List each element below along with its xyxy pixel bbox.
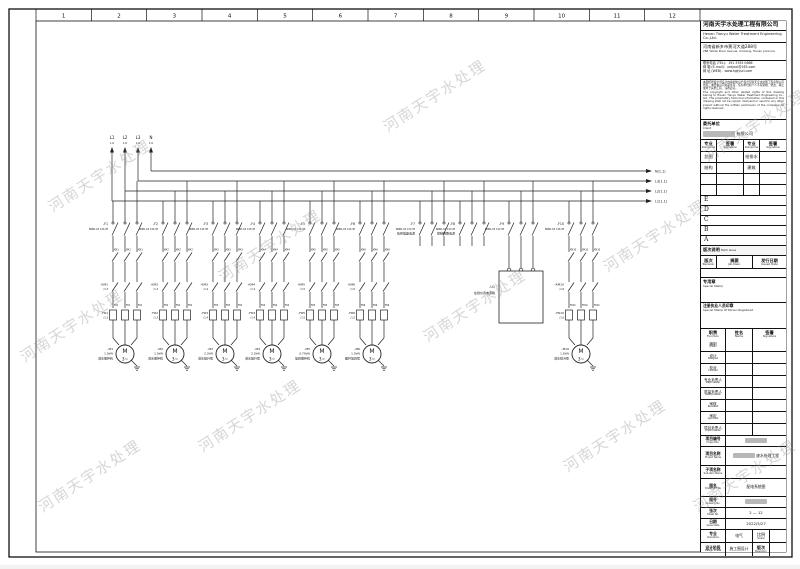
cell: 结构 xyxy=(701,163,717,173)
wire xyxy=(360,338,366,345)
contact-label: KM10 xyxy=(570,249,577,252)
arrow-right-icon xyxy=(646,169,652,173)
breaker-tag: -F1 xyxy=(103,222,108,226)
name-cell xyxy=(726,364,753,375)
contactor-tag: -KM10 xyxy=(555,283,565,287)
contactor-ref: /1.5 xyxy=(300,288,305,291)
contactor-pole-icon xyxy=(212,283,218,292)
breaker-tag: -F7 xyxy=(410,222,415,226)
relay-label: FR10 xyxy=(594,304,600,307)
thermal-relay-symbol xyxy=(184,310,191,320)
row-label: 专业Discipline xyxy=(701,530,726,542)
breaker-contact-icon xyxy=(443,222,445,224)
contactor-tag: -KM5 xyxy=(297,283,305,287)
pe-wire xyxy=(328,360,334,366)
name-cell xyxy=(726,340,753,351)
drawing-sheet: 123456789101112 L1 L2 L3 N 1.0 1.0 1.0 1… xyxy=(0,0,800,565)
thermal-relay-ref: /1.3 xyxy=(153,316,158,319)
client-value: 有限公司 xyxy=(703,131,784,137)
breaker-contact-icon xyxy=(431,222,433,224)
function-table-row: 项目负责人Project Leader xyxy=(701,423,786,435)
wire xyxy=(278,338,284,345)
breaker-tag: -F2 xyxy=(153,222,158,226)
contactor-ref: /1.4 xyxy=(250,288,255,291)
motor-power: 2.2kW xyxy=(204,352,213,356)
motor-name: 潜水搅拌机 xyxy=(98,356,113,361)
sheet-ref: 1.0 xyxy=(136,141,140,145)
contact-label: KM6 xyxy=(385,249,390,252)
relay-label: FR2 xyxy=(176,304,181,307)
contactor-pole-icon xyxy=(333,283,339,292)
cell xyxy=(744,174,760,184)
function-cell: 审定Approved xyxy=(701,412,726,423)
motor-power: 1.5kW xyxy=(560,352,569,356)
thermal-relay-symbol xyxy=(590,310,597,320)
motor-tag: -M6 xyxy=(354,347,360,351)
contactor-pole-icon xyxy=(283,253,289,262)
contact-label: KM4 xyxy=(261,249,266,252)
function-table-row: 校对Checked xyxy=(701,363,786,375)
thermal-relay-tag: -FR4 xyxy=(248,311,255,315)
signature-cell xyxy=(753,400,786,411)
row-label: 图名Drawing Title xyxy=(701,479,726,496)
thermal-relay-ref: /1.5 xyxy=(300,316,305,319)
cell xyxy=(744,185,760,195)
breaker-pole-icon xyxy=(532,223,538,236)
row-value: 电气 xyxy=(726,530,752,542)
arrow-up-icon xyxy=(149,147,153,153)
row-value: 2022/5/27 xyxy=(726,519,786,529)
row-value: 废水处理工程 xyxy=(726,447,786,465)
web-value: www.hgtyscl.com xyxy=(724,69,752,73)
contact-label: KM3 xyxy=(226,249,231,252)
company-name: 河南天宇水处理工程有限公司 xyxy=(701,21,786,31)
breaker-contact-icon xyxy=(212,222,214,224)
feeder-branch: -F1NDB1-63 C16 3PKM1FR1KM1FR1KM1FR1-KM1/… xyxy=(89,181,143,371)
sign-grid-row xyxy=(701,184,786,195)
function-table: 职责Function 姓名Name 签署Signature 编制Drawn设计D… xyxy=(701,329,786,436)
contactor-ref: /1.3 xyxy=(153,288,158,291)
row-label: 图号Drawing No. xyxy=(701,497,726,507)
contact-label: KM3 xyxy=(238,249,243,252)
bus-out-label: L3(1.1) xyxy=(655,180,668,184)
row-label: 子项名称Sub-item Name xyxy=(701,466,726,478)
info-row-date: 日期Issue Date 2022/5/27 xyxy=(701,519,786,530)
breaker-pole-icon xyxy=(321,223,327,236)
bus-lines: N(1.1) L3(1.1) L2(1.1) L1(1.1) xyxy=(112,169,668,204)
motor-tag: -M2 xyxy=(157,347,163,351)
breaker-tag: -F4 xyxy=(250,222,255,226)
relay-label: FR3 xyxy=(238,304,243,307)
phase-label: L2 xyxy=(123,135,128,140)
breaker-pole-icon xyxy=(359,223,365,236)
breaker-contact-icon xyxy=(136,222,138,224)
row-value: 2 — 12 xyxy=(726,508,786,518)
cell: 给排水 xyxy=(744,152,760,162)
breaker-contact-icon xyxy=(580,222,582,224)
relay-label: FR4 xyxy=(273,304,278,307)
info-row-subitem: 子项名称Sub-item Name xyxy=(701,466,786,479)
contactor-pole-icon xyxy=(259,283,265,292)
contactor-pole-icon xyxy=(283,283,289,292)
relay-label: FR2 xyxy=(188,304,193,307)
pe-wire xyxy=(278,360,284,366)
contactor-tag: -KM4 xyxy=(247,283,255,287)
feeder-branch: -F6NDB1-63 C16 3PKM6FR6KM6FR6KM6FR6-KM6/… xyxy=(336,181,390,371)
column-number: 9 xyxy=(505,14,509,20)
arrow-right-icon xyxy=(646,199,652,203)
breaker-contact-icon xyxy=(224,222,226,224)
breaker-contact-icon xyxy=(532,222,534,224)
breaker-contact-icon xyxy=(321,222,323,224)
breaker-contact-icon xyxy=(419,222,421,224)
motor-tag: -M3 xyxy=(207,347,213,351)
column-number: 12 xyxy=(669,14,676,20)
function-table-row: 审核Reviewed xyxy=(701,399,786,411)
breaker-contact-icon xyxy=(471,222,473,224)
motor-name: 潜水排污泵 xyxy=(554,356,569,361)
wire xyxy=(328,338,334,345)
thermal-relay-symbol xyxy=(122,310,129,320)
breaker-contact-icon xyxy=(459,222,461,224)
feeder-branch: -F10NDB1-63 C16 3PKM10FR10KM10FR10KM10FR… xyxy=(545,181,601,371)
motor-letter: M xyxy=(222,348,227,355)
breaker-contact-icon xyxy=(186,222,188,224)
revision-letter-row: C xyxy=(701,215,786,225)
column-number: 11 xyxy=(614,14,621,20)
function-table-row: 质量负责人Quality Leader xyxy=(701,387,786,399)
motor-power: 1.5kW xyxy=(104,352,113,356)
thermal-relay-symbol xyxy=(319,310,326,320)
revision-letter-row: A xyxy=(701,235,786,245)
function-table-rows: 编制Drawn设计Designed校对Checked专业负责人Major Lea… xyxy=(701,340,786,435)
contactor-pole-icon xyxy=(321,283,327,292)
motor-name: 螺杆加药泵 xyxy=(345,356,360,361)
name-cell xyxy=(726,424,753,435)
row-label: 项目名称Project Name xyxy=(701,447,726,465)
motor-phase: 3~ xyxy=(222,357,229,362)
cell: 总图 xyxy=(701,152,717,162)
header-cell: 专业Discipline xyxy=(744,140,760,151)
info-row-phase-revision: 设计阶段Design Phase 施工图设计 版次Revision xyxy=(701,543,786,556)
pe-wire xyxy=(587,360,593,366)
company-contacts: 联系电话 (TEL)：191 3355 0686 邮 箱 (E-mail)：xx… xyxy=(701,61,786,80)
contactor-pole-icon xyxy=(359,253,365,262)
sheet-ref: 1.0 xyxy=(110,141,114,145)
thermal-relay-symbol xyxy=(331,310,338,320)
company-address: 河南省新乡市黄河大道288号 288 Yellow River Avenue, … xyxy=(701,43,786,61)
motor-tag: -M5 xyxy=(304,347,310,351)
contactor-pole-icon xyxy=(271,283,277,292)
sheet-ref: 1.0 xyxy=(123,141,127,145)
thermal-relay-tag: -FR6 xyxy=(348,311,355,315)
thermal-relay-symbol xyxy=(357,310,364,320)
box-name: 在线仪表电源箱 xyxy=(474,290,495,295)
thermal-relay-symbol xyxy=(222,310,229,320)
breaker-contact-icon xyxy=(333,222,335,224)
contactor-pole-icon xyxy=(112,283,118,292)
breaker-spec: NDB1-63 C10 3P xyxy=(436,228,456,231)
function-label-en: Checked xyxy=(701,370,725,373)
wire xyxy=(231,338,237,345)
column-number: 8 xyxy=(449,14,453,20)
function-cell: 设计Designed xyxy=(701,352,726,363)
redacted-value xyxy=(733,453,755,458)
wire xyxy=(587,338,593,345)
breaker-pole-icon xyxy=(371,223,377,236)
bus-out-label: L1(1.1) xyxy=(655,200,668,204)
contactor-pole-icon xyxy=(136,253,142,262)
registered-stamp-label-en: Special Stamp Of Person Registered xyxy=(703,309,784,312)
motor-power: 1.5kW xyxy=(154,352,163,356)
contact-label: KM2 xyxy=(188,249,193,252)
motor-phase: 3~ xyxy=(578,357,585,362)
motor-phase: 3~ xyxy=(122,357,129,362)
motor-name: 潜水搅拌机 xyxy=(148,356,163,361)
thermal-relay-symbol xyxy=(369,310,376,320)
header-cell: 摘要Job Desc. xyxy=(717,256,753,268)
contactor-pole-icon xyxy=(592,253,598,262)
contactor-pole-icon xyxy=(136,283,142,292)
breaker-spec: NDB1-63 C10 3P xyxy=(396,228,416,231)
contact-label: KM3 xyxy=(214,249,219,252)
relay-label: FR4 xyxy=(261,304,266,307)
feeder-name: 检修插座电源 xyxy=(397,230,415,235)
function-table-row: 设计Designed xyxy=(701,351,786,363)
cell xyxy=(717,174,744,184)
relay-label: FR6 xyxy=(385,304,390,307)
row-value: 施工图设计 xyxy=(726,543,752,556)
name-cell xyxy=(726,352,753,363)
copyright-notice: 本图纸所载全部设计内容的知识产权归河南天宇水处理工程有限公司所有。未经本公司书面… xyxy=(701,80,786,120)
wire xyxy=(213,338,219,345)
motor-letter: M xyxy=(269,348,274,355)
row-value xyxy=(770,543,786,556)
pe-wire xyxy=(181,360,187,366)
motor-letter: M xyxy=(122,348,127,355)
function-table-header: 职责Function 姓名Name 签署Signature xyxy=(701,329,786,340)
notice-en: The copyright and other related rights o… xyxy=(703,91,784,110)
header-cell: 签署Signature xyxy=(760,140,786,151)
contactor-pole-icon xyxy=(174,283,180,292)
breaker-pole-icon xyxy=(568,223,574,236)
client-suffix: 有限公司 xyxy=(736,131,753,136)
breaker-contact-icon xyxy=(568,222,570,224)
sign-grid-row: 总图 给排水 xyxy=(701,151,786,162)
function-cell: 质量负责人Quality Leader xyxy=(701,388,726,399)
box-tag: -U1 xyxy=(489,285,495,289)
thermal-relay-symbol xyxy=(578,310,585,320)
sheet-ref: 1.0 xyxy=(149,141,153,145)
row-value xyxy=(726,497,786,507)
pe-wire xyxy=(131,360,137,366)
thermal-relay-symbol xyxy=(110,310,117,320)
relay-label: FR3 xyxy=(226,304,231,307)
breaker-contact-icon xyxy=(162,222,164,224)
thermal-relay-symbol xyxy=(381,310,388,320)
redacted-client-name xyxy=(703,131,735,137)
relay-label: FR1 xyxy=(114,304,119,307)
breaker-contact-icon xyxy=(592,222,594,224)
cell xyxy=(717,163,744,173)
breaker-pole-icon xyxy=(309,223,315,236)
contact-label: KM6 xyxy=(361,249,366,252)
column-number: 10 xyxy=(558,14,565,20)
thermal-relay-symbol xyxy=(234,310,241,320)
relay-label: FR5 xyxy=(335,304,340,307)
wire xyxy=(378,338,384,345)
header-cell: 签署Signature xyxy=(753,329,786,340)
info-row-drawing-title: 图名Drawing Title 配电系统图 xyxy=(701,479,786,497)
breaker-contact-icon xyxy=(359,222,361,224)
contactor-pole-icon xyxy=(383,253,389,262)
motor-tag: -M4 xyxy=(254,347,260,351)
wire xyxy=(181,338,187,345)
contactor-pole-icon xyxy=(162,283,168,292)
outer-border xyxy=(9,9,792,557)
contactor-pole-icon xyxy=(359,283,365,292)
function-cell: 专业负责人Major Leader xyxy=(701,376,726,387)
revision-letter: B xyxy=(701,226,708,235)
breaker-contact-icon xyxy=(271,222,273,224)
contactor-pole-icon xyxy=(592,283,598,292)
name-cell xyxy=(726,376,753,387)
breaker-spec: NDB1-63 C10 3P xyxy=(485,228,505,231)
function-cell: 编制Drawn xyxy=(701,340,726,351)
contactor-pole-icon xyxy=(371,283,377,292)
function-table-row: 专业负责人Major Leader xyxy=(701,375,786,387)
breaker-contact-icon xyxy=(483,222,485,224)
relay-label: FR6 xyxy=(373,304,378,307)
thermal-relay-symbol xyxy=(134,310,141,320)
revision-letter: D xyxy=(701,206,709,215)
info-row-project-name: 项目名称Project Name 废水处理工程 xyxy=(701,447,786,466)
client-section: 委托单位 Client 有限公司 xyxy=(701,120,786,140)
thermal-relay-tag: -FR10 xyxy=(555,311,564,315)
arrow-up-icon xyxy=(136,147,140,153)
motor-name: 潜水提升泵 xyxy=(245,356,260,361)
contactor-pole-icon xyxy=(124,253,130,262)
column-number: 2 xyxy=(117,14,121,20)
breaker-pole-icon xyxy=(580,223,586,236)
arrow-up-icon xyxy=(123,147,127,153)
function-cell: 项目负责人Project Leader xyxy=(701,424,726,435)
breaker-spec: NDB1-63 C16 3P xyxy=(89,228,109,231)
contactor-pole-icon xyxy=(186,283,192,292)
company-name-en: Henan Tianyu Water Treatment Engineering… xyxy=(701,31,786,43)
relay-label: FR5 xyxy=(311,304,316,307)
thermal-relay-ref: /1.4 xyxy=(250,316,255,319)
function-label-en: Project Leader xyxy=(701,430,725,433)
thermal-relay-tag: -FR1 xyxy=(101,311,108,315)
relay-label: FR6 xyxy=(361,304,366,307)
breaker-contact-icon xyxy=(124,222,126,224)
revision-letter: C xyxy=(701,216,709,225)
breaker-pole-icon xyxy=(508,223,514,236)
thermal-relay-ref: /1.6 xyxy=(559,316,564,319)
motor-power: 0.75kW xyxy=(299,352,310,356)
cell xyxy=(701,185,717,195)
thermal-relay-ref: /1.3 xyxy=(103,316,108,319)
breaker-tag: -F8 xyxy=(450,222,455,226)
contact-label: KM1 xyxy=(126,249,131,252)
row-label: 版次Revision xyxy=(752,543,770,556)
contactor-pole-icon xyxy=(568,283,574,292)
signature-cell xyxy=(753,424,786,435)
row-value xyxy=(726,436,786,446)
motor-phase: 3~ xyxy=(269,357,276,362)
thermal-relay-symbol xyxy=(160,310,167,320)
breaker-pole-icon xyxy=(174,223,180,236)
revision-letter-row: D xyxy=(701,205,786,215)
breaker-contact-icon xyxy=(112,222,114,224)
function-label-en: Major Leader xyxy=(701,382,725,385)
schematic-canvas: 123456789101112 L1 L2 L3 N 1.0 1.0 1.0 1… xyxy=(0,0,800,565)
name-cell xyxy=(726,412,753,423)
contactor-pole-icon xyxy=(124,283,130,292)
contact-label: KM5 xyxy=(311,249,316,252)
contact-label: KM1 xyxy=(114,249,119,252)
contactor-tag: -KM1 xyxy=(100,283,108,287)
breaker-spec: NDB1-63 C16 3P xyxy=(336,228,356,231)
row-label: 张次Sheet No. xyxy=(701,508,726,518)
thermal-relay-tag: -FR3 xyxy=(201,311,208,315)
inner-frame xyxy=(36,21,786,552)
relay-label: FR1 xyxy=(138,304,143,307)
header-cell: 专业Discipline xyxy=(701,140,717,151)
sign-grid-row: 结构 建筑 xyxy=(701,162,786,173)
motor-name: 加药搅拌机 xyxy=(295,356,310,361)
function-label-en: Quality Leader xyxy=(701,394,725,397)
thermal-relay-tag: -FR5 xyxy=(298,311,305,315)
cell xyxy=(717,152,744,162)
contact-label: KM1 xyxy=(138,249,143,252)
thermal-relay-symbol xyxy=(281,310,288,320)
breaker-contact-icon xyxy=(520,222,522,224)
contactor-pole-icon xyxy=(333,253,339,262)
function-label-en: Approved xyxy=(701,418,725,421)
web-label: 网 址 (WEB)： xyxy=(703,69,724,73)
contactor-ref: /1.3 xyxy=(103,288,108,291)
thermal-relay-symbol xyxy=(172,310,179,320)
special-stamp-section: 专用章 Special Stamp xyxy=(701,278,786,303)
row-value: 配电系统图 xyxy=(726,479,786,496)
revision-header-row: 版次Revision 摘要Job Desc. 发行日期Issued Date xyxy=(701,256,786,269)
feeder-branch: -F3NDB1-63 C16 3PKM3FR3KM3FR3KM3FR3-KM3/… xyxy=(189,181,243,371)
address-en: 288 Yellow River Avenue, Xinxiang, Henan… xyxy=(703,50,784,53)
contactor-ref: /1.6 xyxy=(559,288,564,291)
relay-label: FR10 xyxy=(582,304,588,307)
contactor-pole-icon xyxy=(212,253,218,262)
function-cell: 审核Reviewed xyxy=(701,400,726,411)
contactor-pole-icon xyxy=(236,283,242,292)
breaker-pole-icon xyxy=(592,223,598,236)
motor-letter: M xyxy=(319,348,324,355)
breaker-tag: -F6 xyxy=(350,222,355,226)
row-value xyxy=(770,530,786,542)
function-label-en: Reviewed xyxy=(701,406,725,409)
bus-out-label: N(1.1) xyxy=(655,170,666,174)
contactor-pole-icon xyxy=(371,253,377,262)
info-row-discipline-scale: 专业Discipline 电气 比例Scale xyxy=(701,530,786,543)
sign-grid-row xyxy=(701,173,786,184)
sign-grid-header: 专业Discipline 签署Signature 专业Discipline 签署… xyxy=(701,140,786,151)
relay-label: FR5 xyxy=(323,304,328,307)
pe-wire xyxy=(231,360,237,366)
contactor-tag: -KM2 xyxy=(150,283,158,287)
instrument-power-box xyxy=(499,271,543,323)
revision-letter-row: E xyxy=(701,196,786,205)
